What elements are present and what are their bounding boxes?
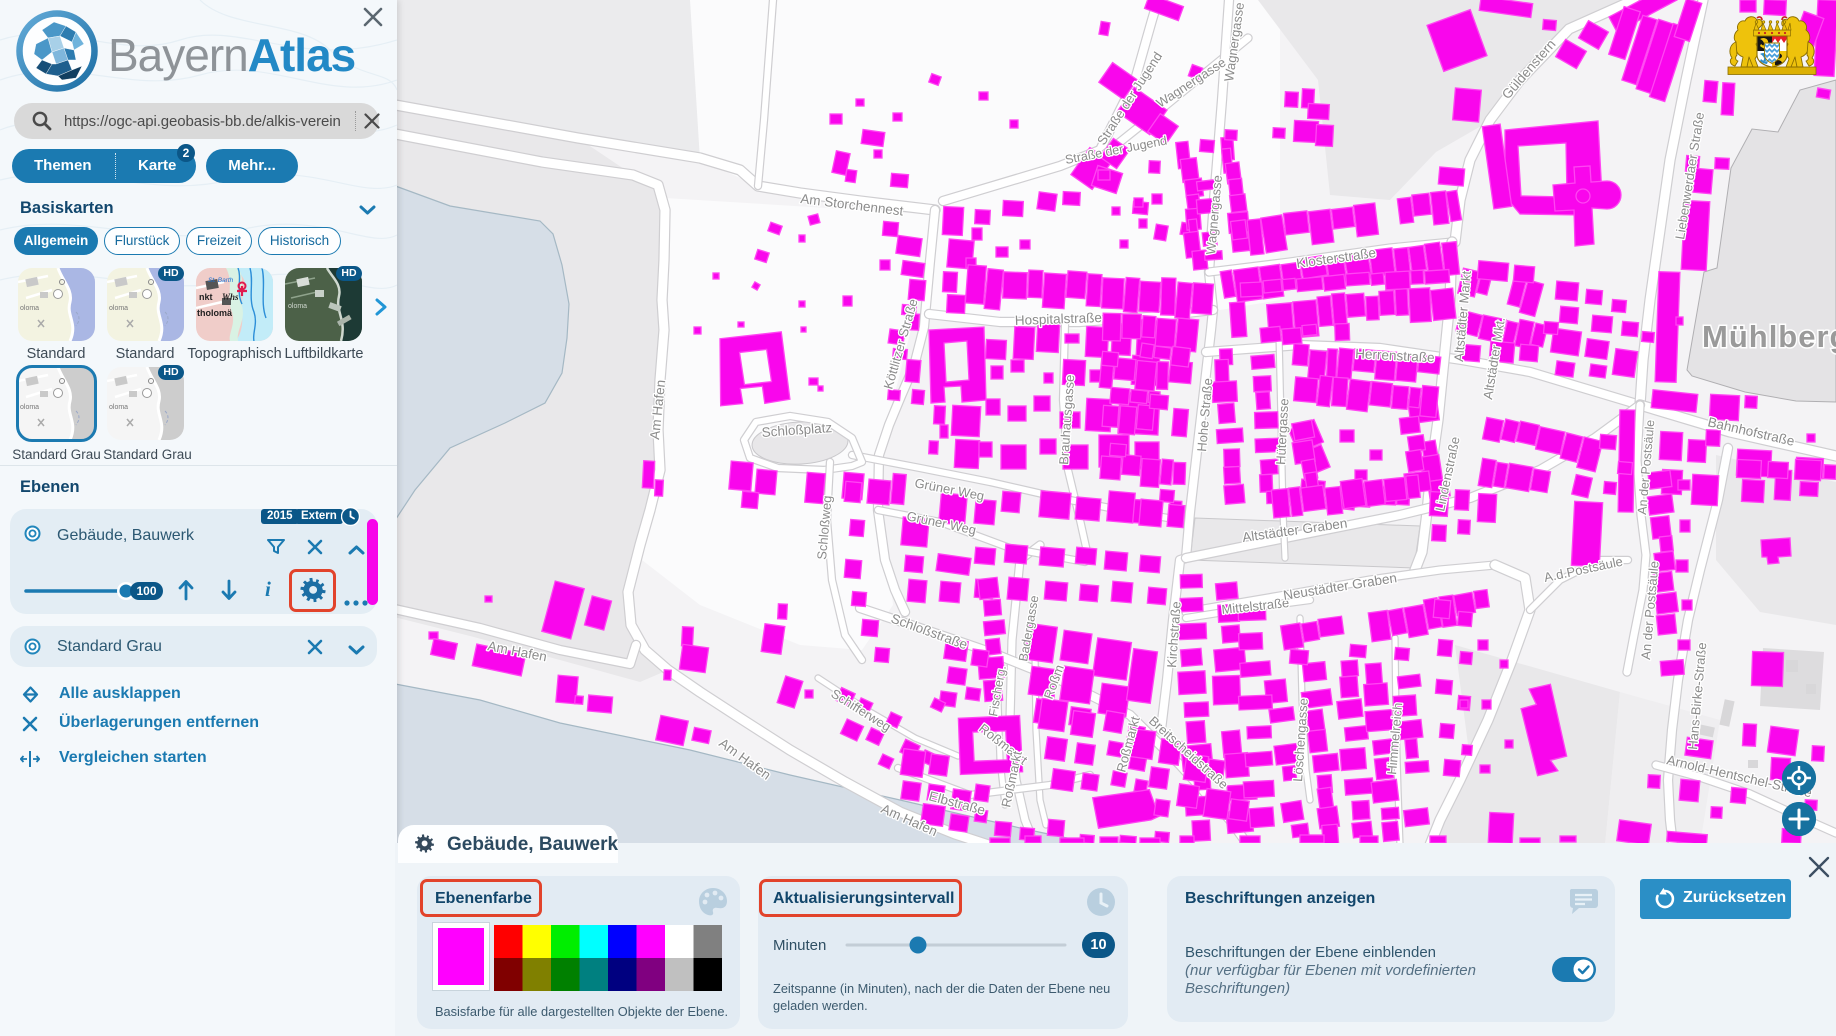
svg-text:Mühlberg: Mühlberg	[1702, 319, 1836, 354]
svg-text:Hospitalstraße: Hospitalstraße	[1015, 310, 1103, 328]
svg-text:oloma: oloma	[20, 404, 39, 411]
svg-text:tholomä: tholomä	[197, 308, 233, 318]
svg-text:oloma: oloma	[109, 305, 128, 312]
svg-text:Whs: Whs	[222, 292, 239, 302]
svg-text:oloma: oloma	[20, 305, 39, 312]
svg-text:St. Barth: St. Barth	[208, 277, 234, 284]
svg-text:nkt: nkt	[199, 292, 213, 302]
svg-text:oloma: oloma	[109, 404, 128, 411]
svg-text:oloma: oloma	[288, 303, 307, 310]
